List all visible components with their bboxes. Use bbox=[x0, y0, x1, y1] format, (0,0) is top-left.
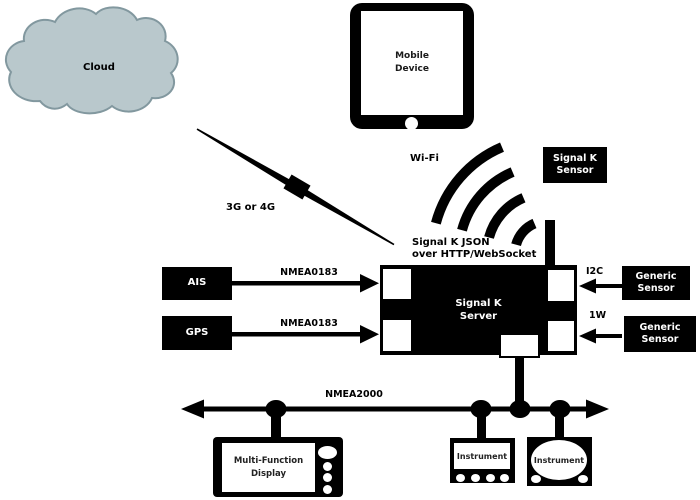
generic-sensor-box-1w: Generic Sensor bbox=[624, 316, 696, 352]
i2c-arrow bbox=[593, 284, 622, 288]
signalk-architecture-diagram: Cloud Mobile Device Wi-Fi 3G or 4G Signa… bbox=[0, 0, 700, 500]
server-port-gps bbox=[383, 320, 411, 351]
i2c-arrowhead bbox=[579, 279, 596, 294]
nmea0183-arrow-gps bbox=[232, 332, 363, 337]
server-port-i2c bbox=[548, 270, 574, 301]
mfd-button-icon bbox=[323, 485, 332, 494]
generic-sensor-box-i2c: Generic Sensor bbox=[622, 266, 690, 300]
mfd-button-icon bbox=[323, 473, 332, 482]
signalk-sensor-box: Signal K Sensor bbox=[543, 147, 607, 183]
nmea0183-arrow-ais bbox=[232, 281, 363, 286]
cellular-label: 3G or 4G bbox=[226, 202, 275, 214]
antenna-icon bbox=[545, 220, 555, 266]
nmea2000-label: NMEA2000 bbox=[312, 389, 396, 400]
instrument-square-screen: Instrument bbox=[454, 443, 510, 469]
instrument-button-icon bbox=[486, 474, 495, 482]
instrument-square: Instrument bbox=[450, 438, 515, 483]
nmea0183-arrowhead-gps bbox=[360, 325, 379, 344]
gps-box: GPS bbox=[162, 316, 232, 350]
instrument-round-dial: Instrument bbox=[531, 440, 587, 480]
bus-connector-dot bbox=[266, 400, 287, 418]
nmea0183-label-ais: NMEA0183 bbox=[270, 267, 348, 278]
server-port-ais bbox=[383, 269, 411, 299]
wifi-signal-icon bbox=[462, 172, 513, 230]
server-port-1w bbox=[548, 321, 574, 351]
mfd-screen: Multi-Function Display bbox=[222, 443, 315, 492]
instrument-button-icon bbox=[578, 475, 588, 483]
instrument-button-icon bbox=[471, 474, 480, 482]
one-wire-label: 1W bbox=[589, 310, 606, 321]
bus-connector-dot bbox=[510, 400, 531, 418]
one-wire-arrow bbox=[593, 334, 622, 338]
mfd-button-icon bbox=[323, 462, 332, 471]
bus-arrowhead-right bbox=[586, 400, 609, 419]
nmea0183-arrowhead-ais bbox=[360, 274, 379, 293]
nmea2000-bus bbox=[196, 407, 594, 412]
cloud-shape bbox=[6, 7, 178, 113]
nmea0183-label-gps: NMEA0183 bbox=[270, 318, 348, 329]
mobile-device: Mobile Device bbox=[350, 3, 474, 129]
server-port-nmea2000 bbox=[499, 333, 540, 358]
mfd-knob-icon bbox=[318, 446, 337, 459]
instrument-round: Instrument bbox=[527, 437, 592, 486]
bus-arrowhead-left bbox=[181, 400, 204, 419]
multi-function-display: Multi-Function Display bbox=[213, 437, 343, 497]
home-button-icon bbox=[405, 117, 418, 130]
bus-connector-dot bbox=[550, 400, 571, 418]
cloud-label: Cloud bbox=[66, 62, 132, 74]
instrument-button-icon bbox=[456, 474, 465, 482]
protocol-note: Signal K JSON over HTTP/WebSocket bbox=[412, 237, 536, 261]
instrument-button-icon bbox=[500, 474, 509, 482]
bus-connector-dot bbox=[471, 400, 492, 418]
one-wire-arrowhead bbox=[579, 329, 596, 344]
mobile-device-screen: Mobile Device bbox=[361, 11, 463, 115]
i2c-label: I2C bbox=[586, 266, 603, 277]
wifi-label: Wi-Fi bbox=[410, 153, 439, 165]
instrument-button-icon bbox=[531, 475, 541, 483]
ais-box: AIS bbox=[162, 267, 232, 300]
